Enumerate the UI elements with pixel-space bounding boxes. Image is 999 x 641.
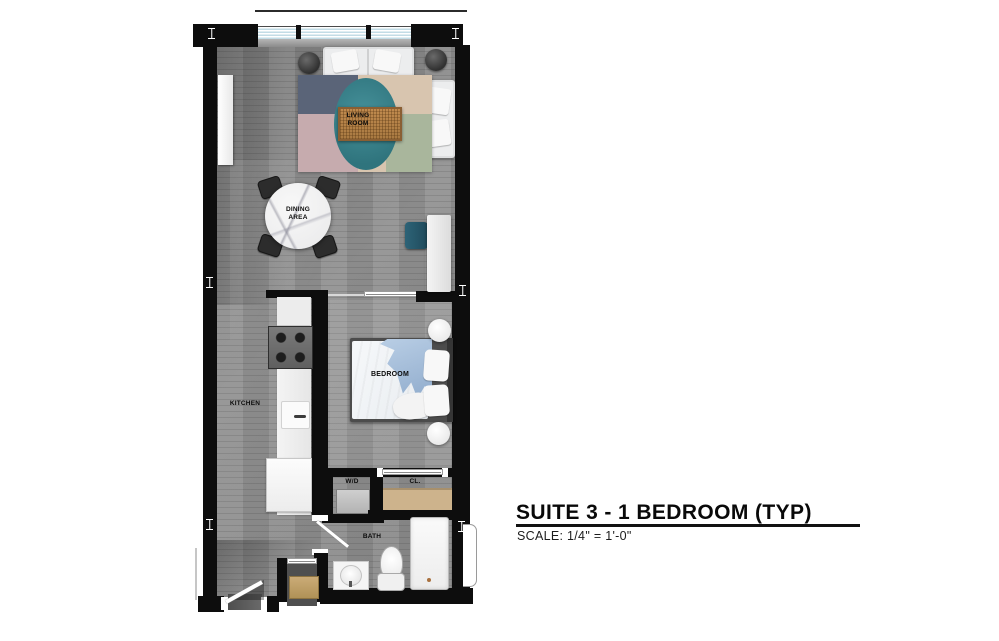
title-underline xyxy=(516,524,860,527)
wd-label: W/D xyxy=(334,478,370,486)
balcony-edge-line xyxy=(255,10,467,12)
kitchen-label: KITCHEN xyxy=(220,400,270,408)
ottoman-left xyxy=(298,52,320,74)
bath-label: BATH xyxy=(352,533,392,541)
bedroom-door-track xyxy=(328,294,366,296)
sofa-main-divider xyxy=(367,49,369,76)
nightstand-top xyxy=(428,319,451,342)
sink-faucet xyxy=(294,415,306,418)
kitchen-upper-cabinet xyxy=(277,297,310,326)
toilet-tank xyxy=(377,573,405,591)
bed-pillow-bottom xyxy=(423,384,450,417)
exterior-balcony-outline xyxy=(463,524,477,587)
suite-title: SUITE 3 - 1 BEDROOM (TYP) xyxy=(516,501,812,525)
desk-chair xyxy=(405,222,428,249)
wall-tick-top-left xyxy=(208,28,215,39)
sofa-main-cushion-right xyxy=(372,49,401,73)
window-band xyxy=(258,26,411,40)
closet-sliding-door xyxy=(382,469,443,475)
bathtub-drain xyxy=(427,578,431,582)
vanity-faucet xyxy=(349,581,352,587)
scale-label: SCALE: 1/4" = 1'-0" xyxy=(517,529,632,543)
bed-pillow-top xyxy=(423,349,450,382)
floor-plan-sheet: W/D CL. LIVING ROOM DINING AREA xyxy=(0,0,999,641)
bedroom-sliding-door xyxy=(364,291,418,297)
wall-bedroom-north-right xyxy=(416,291,458,302)
window-mullion-right xyxy=(366,25,371,39)
entry-closet-sliding-door xyxy=(287,558,317,564)
ottoman-right xyxy=(425,49,447,71)
nightstand-bottom xyxy=(427,422,450,445)
wall-tick-left-mid xyxy=(206,277,213,288)
window-mullion-left xyxy=(296,25,301,39)
wall-tick-left-lower xyxy=(206,519,213,530)
exterior-stoop-line xyxy=(195,548,197,600)
fridge xyxy=(266,458,312,512)
wall-tick-right-mid xyxy=(459,285,466,296)
entry-bench xyxy=(289,576,319,599)
entry-closet-wall-left xyxy=(277,558,287,602)
closet-shelf xyxy=(383,488,452,510)
wall-tick-top-right xyxy=(452,28,459,39)
wd-unit xyxy=(336,489,370,514)
closet-label: CL. xyxy=(398,478,432,486)
stove xyxy=(268,326,313,369)
bath-door-jamb-top xyxy=(312,515,328,521)
media-console xyxy=(218,75,233,165)
window-sill xyxy=(258,39,411,47)
vanity-sink xyxy=(333,561,369,590)
wall-right-upper xyxy=(455,45,470,292)
desk xyxy=(427,215,451,292)
dining-area-label: DINING AREA xyxy=(278,206,318,222)
bedroom-label: BEDROOM xyxy=(362,371,418,379)
wall-top-left-block xyxy=(193,24,258,47)
living-room-label: LIVING ROOM xyxy=(341,112,375,128)
